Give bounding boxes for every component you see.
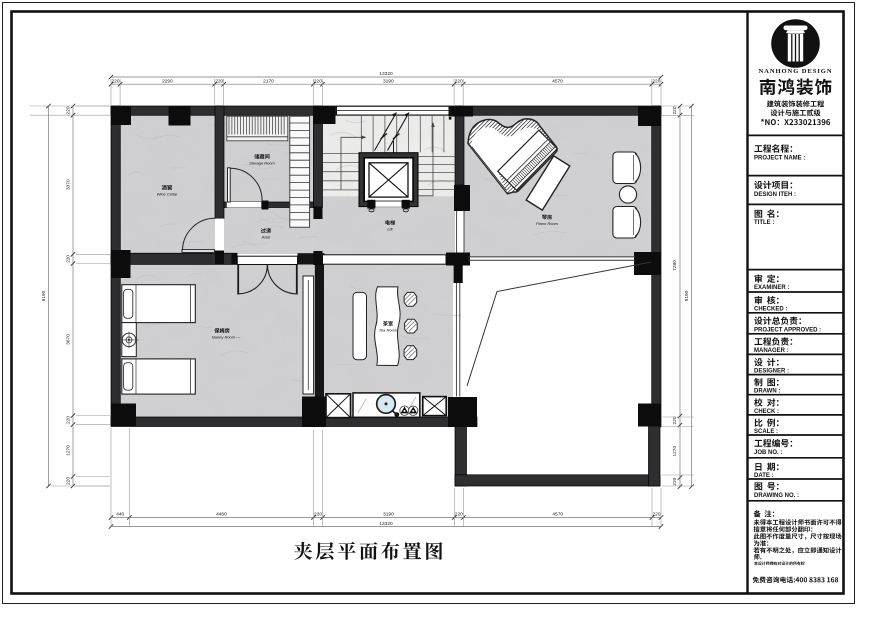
svg-text:13320: 13320: [379, 71, 393, 77]
svg-text:220: 220: [111, 79, 119, 85]
svg-text:4460: 4460: [216, 512, 227, 518]
svg-text:3190: 3190: [383, 512, 394, 518]
svg-text:2290: 2290: [162, 79, 173, 85]
svg-text:Piano Room: Piano Room: [536, 221, 559, 226]
svg-text:CHECK :: CHECK :: [754, 409, 779, 415]
svg-text:220: 220: [652, 79, 660, 85]
svg-text:4570: 4570: [552, 79, 563, 85]
svg-text:220: 220: [314, 79, 322, 85]
svg-text:220: 220: [652, 512, 660, 518]
svg-text:NANHONG DESIGN: NANHONG DESIGN: [759, 68, 833, 75]
svg-text:DRAWING NO. :: DRAWING NO. :: [754, 493, 799, 499]
svg-text:JOB NO. :: JOB NO. :: [754, 450, 782, 456]
svg-text:MANAGER :: MANAGER :: [754, 348, 789, 354]
svg-text:2170: 2170: [263, 79, 274, 85]
svg-text:3190: 3190: [383, 79, 394, 85]
svg-text:9190: 9190: [41, 290, 47, 301]
svg-text:DESIGNER :: DESIGNER :: [754, 369, 789, 375]
svg-text:220: 220: [215, 79, 223, 85]
svg-text:PROJECT APPROVED :: PROJECT APPROVED :: [754, 327, 821, 333]
svg-text:220: 220: [672, 477, 678, 485]
svg-text:PROJECT NAME :: PROJECT NAME :: [754, 156, 805, 162]
svg-text:440: 440: [116, 512, 124, 518]
svg-text:220: 220: [66, 255, 72, 263]
svg-text:220: 220: [66, 106, 72, 114]
svg-text:220: 220: [672, 106, 678, 114]
svg-text:3670: 3670: [66, 334, 72, 345]
svg-text:3370: 3370: [66, 179, 72, 190]
svg-text:220: 220: [455, 79, 463, 85]
svg-text:DATE :: DATE :: [754, 473, 774, 479]
svg-text:EXAMINER :: EXAMINER :: [754, 285, 789, 291]
svg-text:Storage Room: Storage Room: [249, 161, 275, 166]
svg-text:Lift: Lift: [387, 227, 393, 232]
svg-text:220: 220: [455, 512, 463, 518]
svg-text:DESIGN ITEH :: DESIGN ITEH :: [754, 192, 796, 198]
svg-text:1270: 1270: [66, 445, 72, 456]
svg-text:4570: 4570: [552, 512, 563, 518]
svg-text:9190: 9190: [684, 290, 690, 301]
svg-text:13320: 13320: [379, 521, 393, 527]
svg-text:220: 220: [314, 512, 322, 518]
svg-text:220: 220: [672, 416, 678, 424]
svg-text:SCALE :: SCALE :: [754, 429, 778, 435]
svg-text:DRAWN :: DRAWN :: [754, 389, 780, 395]
svg-text:220: 220: [66, 416, 72, 424]
svg-text:CHECKED :: CHECKED :: [754, 307, 787, 313]
svg-text:Nanny Room —: Nanny Room —: [212, 335, 241, 340]
svg-text:1270: 1270: [672, 446, 678, 457]
svg-text:Aisle: Aisle: [261, 235, 271, 240]
svg-text:Wine Cellar: Wine Cellar: [157, 192, 178, 197]
svg-text:Tea Room: Tea Room: [379, 328, 398, 333]
svg-text:TITLE :: TITLE :: [754, 220, 774, 226]
svg-text:220: 220: [66, 477, 72, 485]
svg-text:7280: 7280: [672, 260, 678, 271]
